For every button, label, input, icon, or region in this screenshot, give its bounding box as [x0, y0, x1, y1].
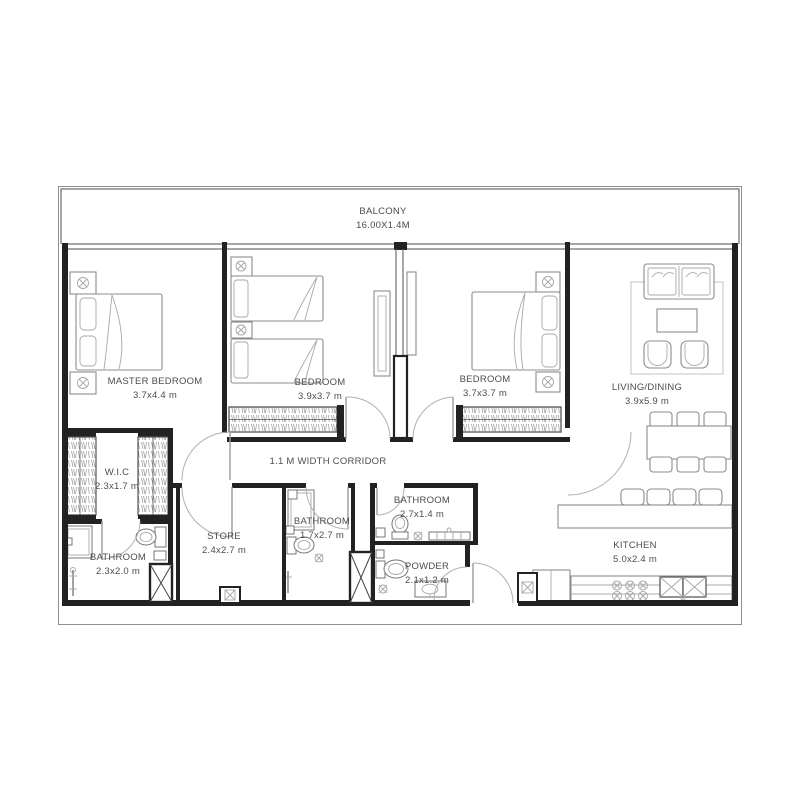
- dining-table: [647, 426, 731, 459]
- entry-door-arc: [473, 563, 513, 603]
- room-label-bedroom-2: BEDROOM: [295, 377, 346, 388]
- bar-stool: [621, 489, 644, 505]
- room-dims-powder: 2.1x1.2 m: [405, 575, 449, 586]
- cabinet: [374, 291, 390, 376]
- corner-sink: [376, 528, 385, 537]
- door-arc: [346, 397, 390, 439]
- room-dims-master-bedroom: 3.7x4.4 m: [133, 390, 177, 401]
- floor-drain: [379, 585, 387, 593]
- dining-chair: [677, 412, 699, 427]
- room-label-master-bedroom: MASTER BEDROOM: [108, 376, 203, 387]
- bedroom-2-furniture: [229, 257, 390, 437]
- coffee-table: [657, 309, 697, 332]
- balcony: [61, 189, 739, 249]
- fridge: [533, 570, 570, 602]
- double-bed: [472, 292, 560, 370]
- kitchen-fixtures: [533, 570, 732, 603]
- floor-drain: [315, 554, 323, 562]
- dining-chair: [704, 412, 726, 427]
- towel-rail: [69, 568, 77, 597]
- cabinet: [407, 272, 416, 355]
- door-arc: [568, 432, 631, 495]
- single-bed: [231, 276, 323, 321]
- room-dims-master-bathroom: 2.3x2.0 m: [96, 566, 140, 577]
- breakfast-bar: [558, 505, 732, 528]
- floor-drain: [414, 532, 422, 540]
- room-dims-bedroom-3: 3.7x3.7 m: [463, 388, 507, 399]
- shared-bathroom-fixtures: [284, 490, 323, 593]
- room-dims-kitchen: 5.0x2.4 m: [613, 554, 657, 565]
- bedroom-3-furniture: [407, 272, 561, 437]
- door-arc: [182, 432, 230, 480]
- dining-chair: [677, 457, 699, 472]
- room-label-kitchen: KITCHEN: [613, 540, 656, 551]
- room-label-wic: W.I.C: [105, 467, 129, 478]
- bar-stool: [647, 489, 670, 505]
- dining-chair: [650, 412, 672, 427]
- shower-tray: [429, 532, 470, 540]
- floor-plan-page: BALCONY 16.00X1.4M MASTER BEDROOM 3.7x4.…: [0, 0, 800, 800]
- dining-chair: [704, 457, 726, 472]
- kitchen-counter: [571, 576, 732, 603]
- room-dims-wic: 2.3x1.7 m: [95, 481, 139, 492]
- floor-plan-canvas: BALCONY 16.00X1.4M MASTER BEDROOM 3.7x4.…: [0, 0, 800, 800]
- room-label-guest-bathroom: BATHROOM: [394, 495, 450, 506]
- room-label-shared-bathroom: BATHROOM: [294, 516, 350, 527]
- room-dims-bedroom-2: 3.9x3.7 m: [298, 391, 342, 402]
- double-bed: [76, 294, 162, 370]
- room-label-bedroom-3: BEDROOM: [460, 374, 511, 385]
- service-shafts: [150, 552, 537, 603]
- room-label-master-bathroom: BATHROOM: [90, 552, 146, 563]
- toilet: [155, 527, 166, 547]
- dining-chair: [650, 457, 672, 472]
- room-label-store: STORE: [207, 531, 241, 542]
- room-dims-living-dining: 3.9x5.9 m: [625, 396, 669, 407]
- door-arc: [413, 397, 453, 439]
- bidet: [154, 551, 166, 560]
- room-dims-store: 2.4x2.7 m: [202, 545, 246, 556]
- bar-stool: [699, 489, 722, 505]
- room-label-balcony: BALCONY: [359, 206, 407, 217]
- room-label-powder: POWDER: [405, 561, 449, 572]
- room-dims-guest-bathroom: 2.7x1.4 m: [400, 509, 444, 520]
- room-label-living-dining: LIVING/DINING: [612, 382, 682, 393]
- door-arc: [182, 487, 232, 537]
- room-dims-shared-bathroom: 1.7x2.7 m: [300, 530, 344, 541]
- corridor-label: 1.1 M WIDTH CORRIDOR: [270, 456, 387, 467]
- bar-stool: [673, 489, 696, 505]
- room-dims-balcony: 16.00X1.4M: [356, 220, 410, 231]
